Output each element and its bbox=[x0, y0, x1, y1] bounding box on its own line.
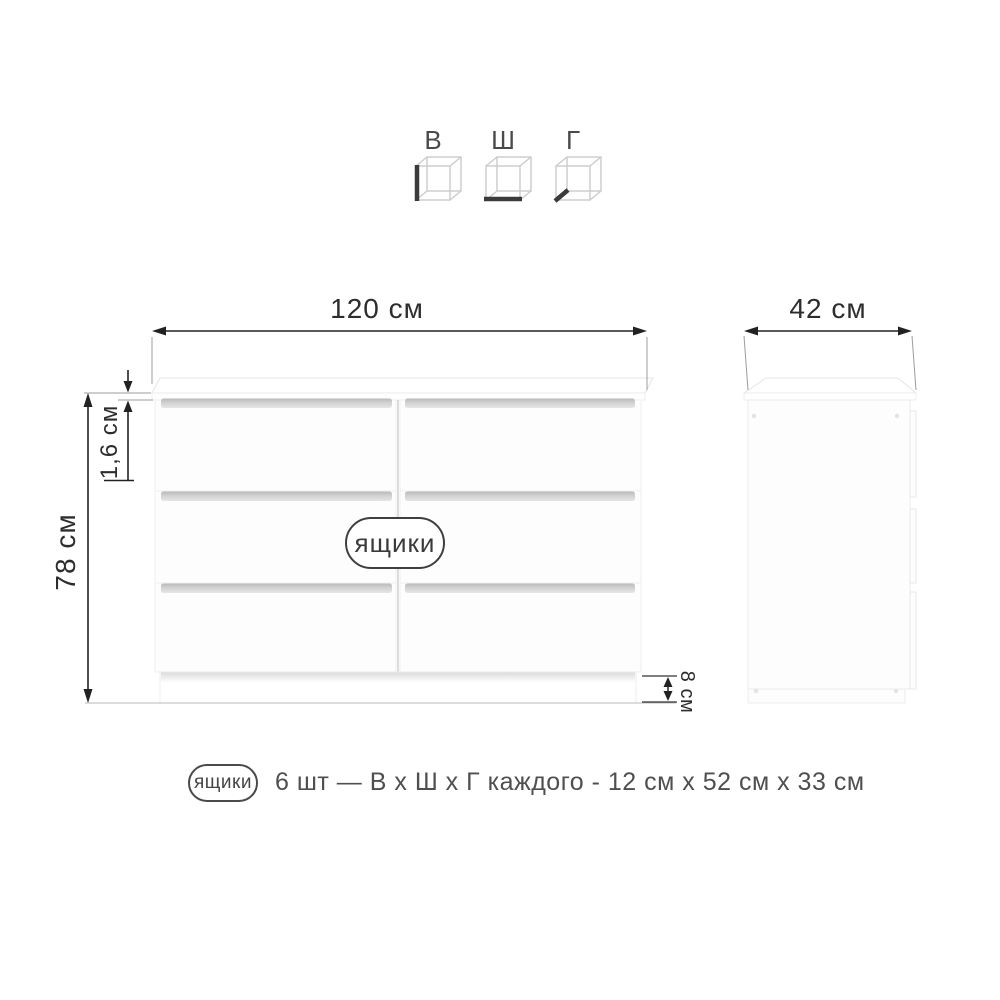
drawers-badge: ящики bbox=[345, 517, 445, 569]
side-panel bbox=[748, 400, 910, 689]
drawers-legend: ящики 6 шт — В х Ш х Г каждого - 12 см х… bbox=[188, 763, 865, 802]
front-top-surface bbox=[152, 378, 653, 393]
drawer bbox=[400, 583, 641, 672]
front-height-dimension-label: 78 см bbox=[52, 502, 80, 602]
drawers-badge-label: ящики bbox=[355, 528, 436, 559]
side-depth-dimension-label: 42 см bbox=[728, 295, 928, 323]
height-key-label: В bbox=[416, 127, 450, 153]
legend-description: 6 шт — В х Ш х Г каждого - 12 см х 52 см… bbox=[275, 768, 865, 797]
width-key-label: Ш bbox=[486, 127, 520, 153]
depth-cube-icon bbox=[555, 157, 601, 201]
drawer bbox=[400, 400, 641, 491]
side-top-surface bbox=[744, 378, 916, 393]
top-thickness-dimension-label: 1,6 см bbox=[98, 402, 122, 482]
drawer-front-edge bbox=[910, 411, 916, 497]
side-base bbox=[748, 689, 905, 703]
drawer-front-edge bbox=[910, 509, 916, 583]
handle-recess bbox=[405, 492, 635, 502]
handle-recess bbox=[161, 492, 392, 502]
side-view-drawing bbox=[744, 378, 916, 703]
drawer bbox=[155, 400, 396, 491]
drawer-front-edge bbox=[910, 592, 916, 689]
front-width-dimension-label: 120 см bbox=[277, 295, 477, 323]
handle-recess bbox=[161, 399, 392, 409]
plinth-height-dimension-label: 8 см bbox=[677, 662, 697, 722]
legend-badge: ящики bbox=[188, 764, 258, 802]
drawer bbox=[155, 583, 396, 672]
legend-badge-label: ящики bbox=[194, 772, 252, 794]
product-dimensions-diagram: В Ш Г 120 см 42 см 78 см 1,6 см 8 см ящи… bbox=[0, 0, 1000, 1000]
depth-key-label: Г bbox=[556, 127, 590, 153]
height-cube-icon bbox=[416, 157, 461, 201]
plinth-dimension-lines bbox=[642, 676, 677, 702]
handle-recess bbox=[405, 584, 635, 594]
handle-recess bbox=[161, 584, 392, 594]
handle-recess bbox=[405, 399, 635, 409]
side-top-panel-edge bbox=[744, 393, 916, 400]
width-cube-icon bbox=[484, 157, 531, 200]
